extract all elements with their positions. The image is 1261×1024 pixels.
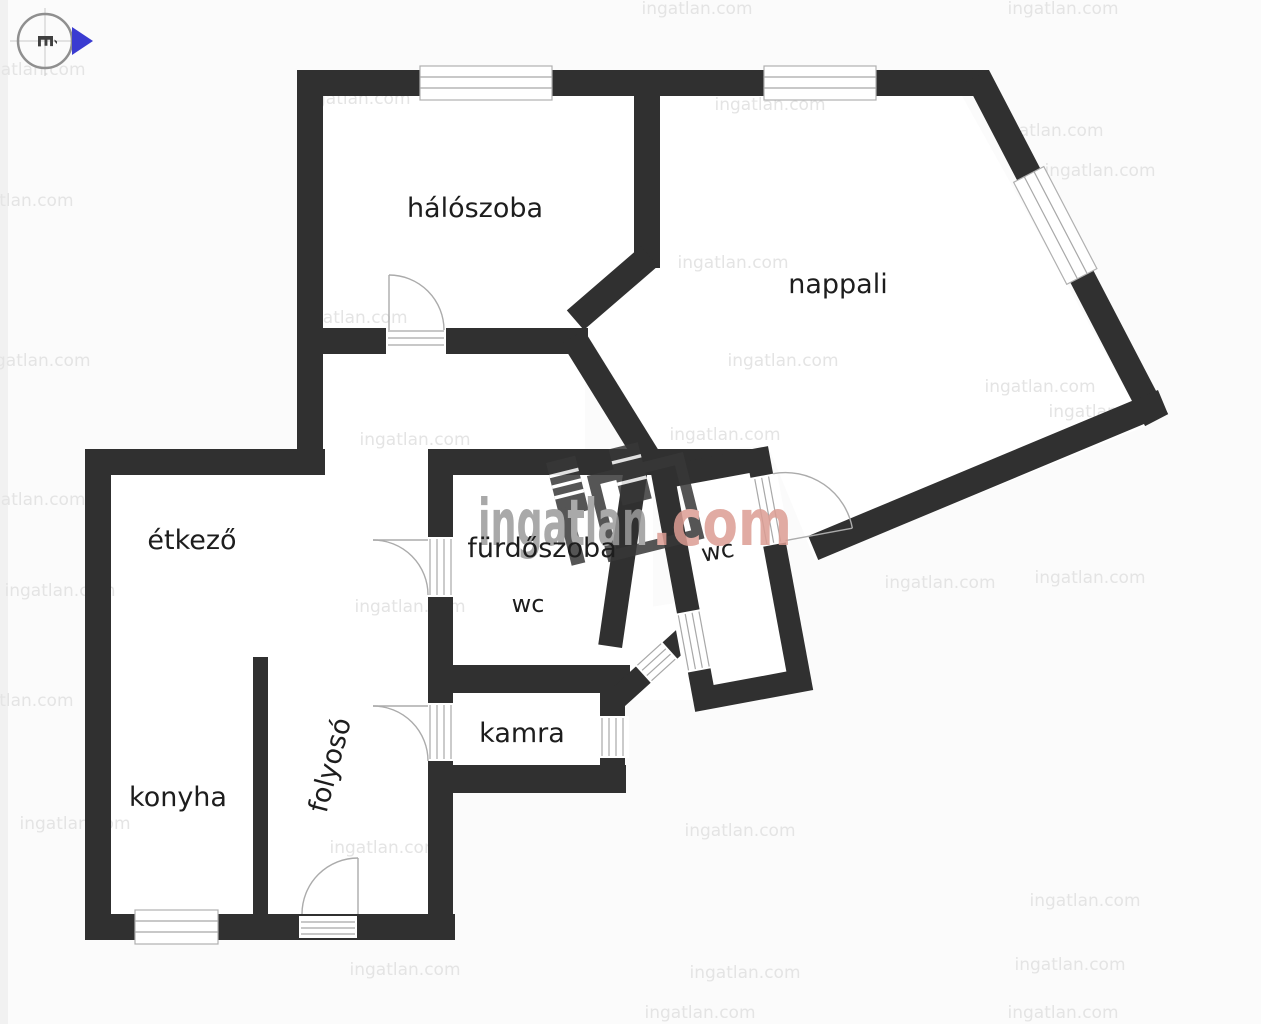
watermark-tile: ingatlan.com xyxy=(645,1003,756,1023)
watermark-tile: ingatlan.com xyxy=(1008,1003,1119,1023)
window-nappali-top xyxy=(764,66,876,100)
door-opening-haloszoba xyxy=(386,324,446,358)
wall-top xyxy=(297,70,989,96)
watermark-tile: ingatlan.com xyxy=(0,490,86,510)
compass-north-letter: É xyxy=(33,34,57,48)
wall-outer-left xyxy=(85,449,111,940)
door-opening-furdoszoba xyxy=(424,537,457,597)
label-etkezo: étkező xyxy=(147,525,236,556)
watermark-tile: ingatlan.com xyxy=(360,430,471,450)
wall-haloszoba-nappali xyxy=(634,96,660,268)
watermark-tile: ingatlan.com xyxy=(885,573,996,593)
floorplan-svg: ingatlan.com ingatlan.com ingatlan.com i… xyxy=(0,0,1261,1024)
wall-kamra-bottom xyxy=(428,765,626,793)
wall-furdoszoba-kamra xyxy=(428,665,630,693)
watermark-tile: ingatlan.com xyxy=(0,691,74,711)
watermark-tile: ingatlan.com xyxy=(0,191,74,211)
watermark-tile: ingatlan.com xyxy=(1015,955,1126,975)
label-wc-kulon: wc xyxy=(699,534,736,567)
watermark-tile: ingatlan.com xyxy=(985,377,1096,397)
label-furdoszoba: fürdőszoba xyxy=(467,533,616,564)
watermark-tile: ingatlan.com xyxy=(685,821,796,841)
label-haloszoba: hálószoba xyxy=(407,193,543,224)
door-opening-kamra xyxy=(424,703,457,761)
watermark-tile: ingatlan.com xyxy=(1035,568,1146,588)
floorplan-page: ingatlan.com ingatlan.com ingatlan.com i… xyxy=(0,0,1261,1024)
watermark-tile: ingatlan.com xyxy=(642,0,753,19)
wall-haloszoba-bottom xyxy=(322,328,588,354)
wall-haloszoba-left xyxy=(297,70,323,475)
watermark-tile: ingatlan.com xyxy=(1045,161,1156,181)
wall-konyha-folyoso-partition xyxy=(253,657,268,914)
watermark-tile: ingatlan.com xyxy=(1030,891,1141,911)
watermark-tile: ingatlan.com xyxy=(1008,0,1119,19)
watermark-tile: ingatlan.com xyxy=(350,960,461,980)
wall-etkezo-top xyxy=(85,449,325,475)
watermark-tile: ingatlan.com xyxy=(20,814,131,834)
wall-folyoso-right xyxy=(428,449,453,940)
label-nappali: nappali xyxy=(788,269,887,300)
watermark-tile: ingatlan.com xyxy=(670,425,781,445)
watermark-tile: ingatlan.com xyxy=(678,253,789,273)
label-konyha: konyha xyxy=(129,782,227,813)
hall-band-floor-2 xyxy=(323,354,429,475)
window-haloszoba xyxy=(420,66,552,100)
watermark-tile: ingatlan.com xyxy=(0,351,91,371)
compass-north-arrow-icon xyxy=(72,27,93,55)
label-kamra: kamra xyxy=(479,718,565,749)
window-konyha xyxy=(135,910,218,944)
label-wc-furdoszoba: wc xyxy=(512,590,545,618)
watermark-tile: ingatlan.com xyxy=(690,963,801,983)
watermark-tile: ingatlan.com xyxy=(330,838,441,858)
watermark-tile: ingatlan.com xyxy=(0,60,86,80)
watermark-tile: ingatlan.com xyxy=(728,351,839,371)
door-opening-folyoso xyxy=(299,916,357,938)
opening-kamra-right xyxy=(596,716,629,758)
